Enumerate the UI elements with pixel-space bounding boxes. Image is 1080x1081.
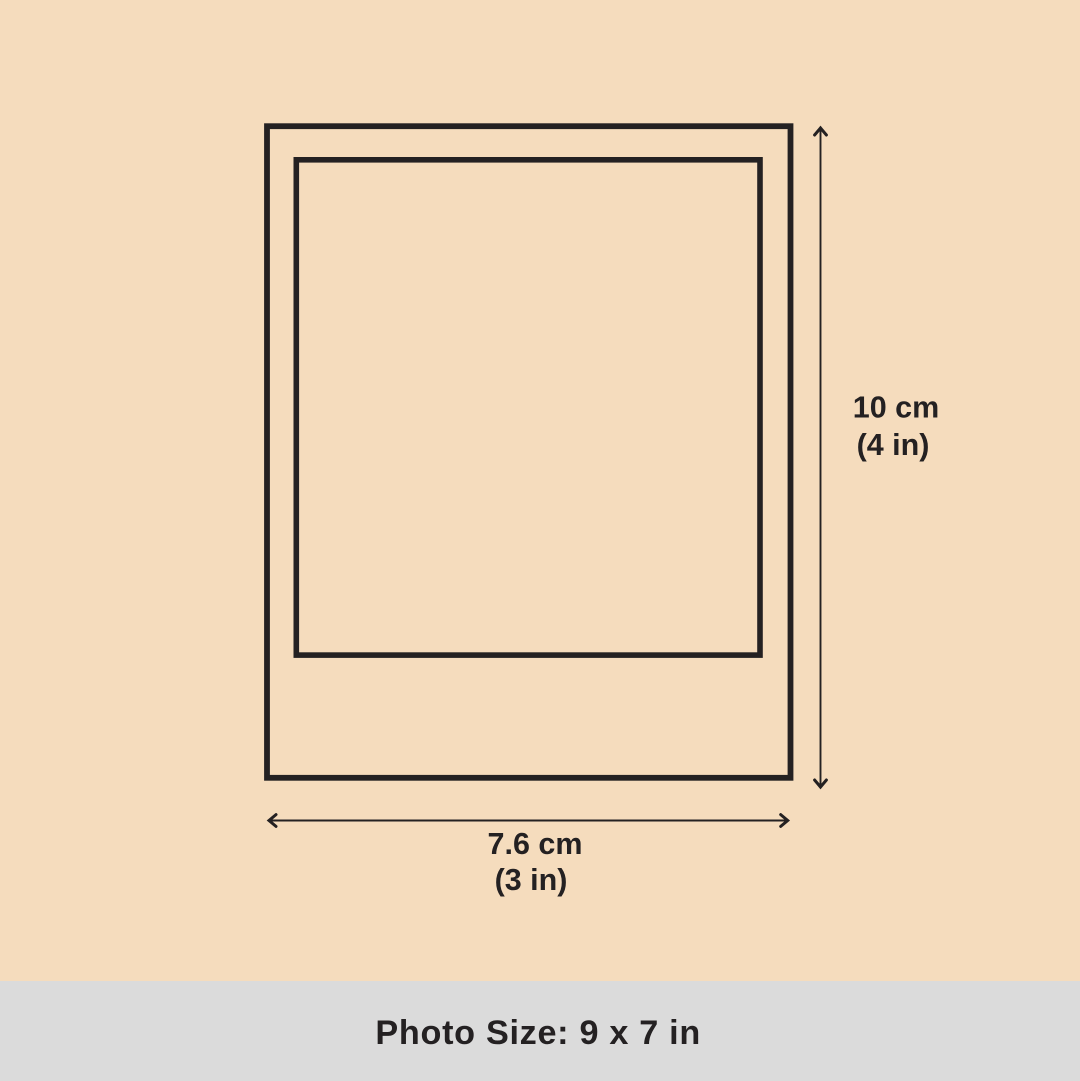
svg-text:10 cm: 10 cm xyxy=(853,391,939,425)
svg-text:7.6 cm: 7.6 cm xyxy=(488,827,583,861)
svg-text:(4 in): (4 in) xyxy=(857,428,930,462)
svg-text:(3 in): (3 in) xyxy=(495,863,568,897)
svg-text:Photo Size: 9 x 7 in: Photo Size: 9 x 7 in xyxy=(375,1014,701,1052)
